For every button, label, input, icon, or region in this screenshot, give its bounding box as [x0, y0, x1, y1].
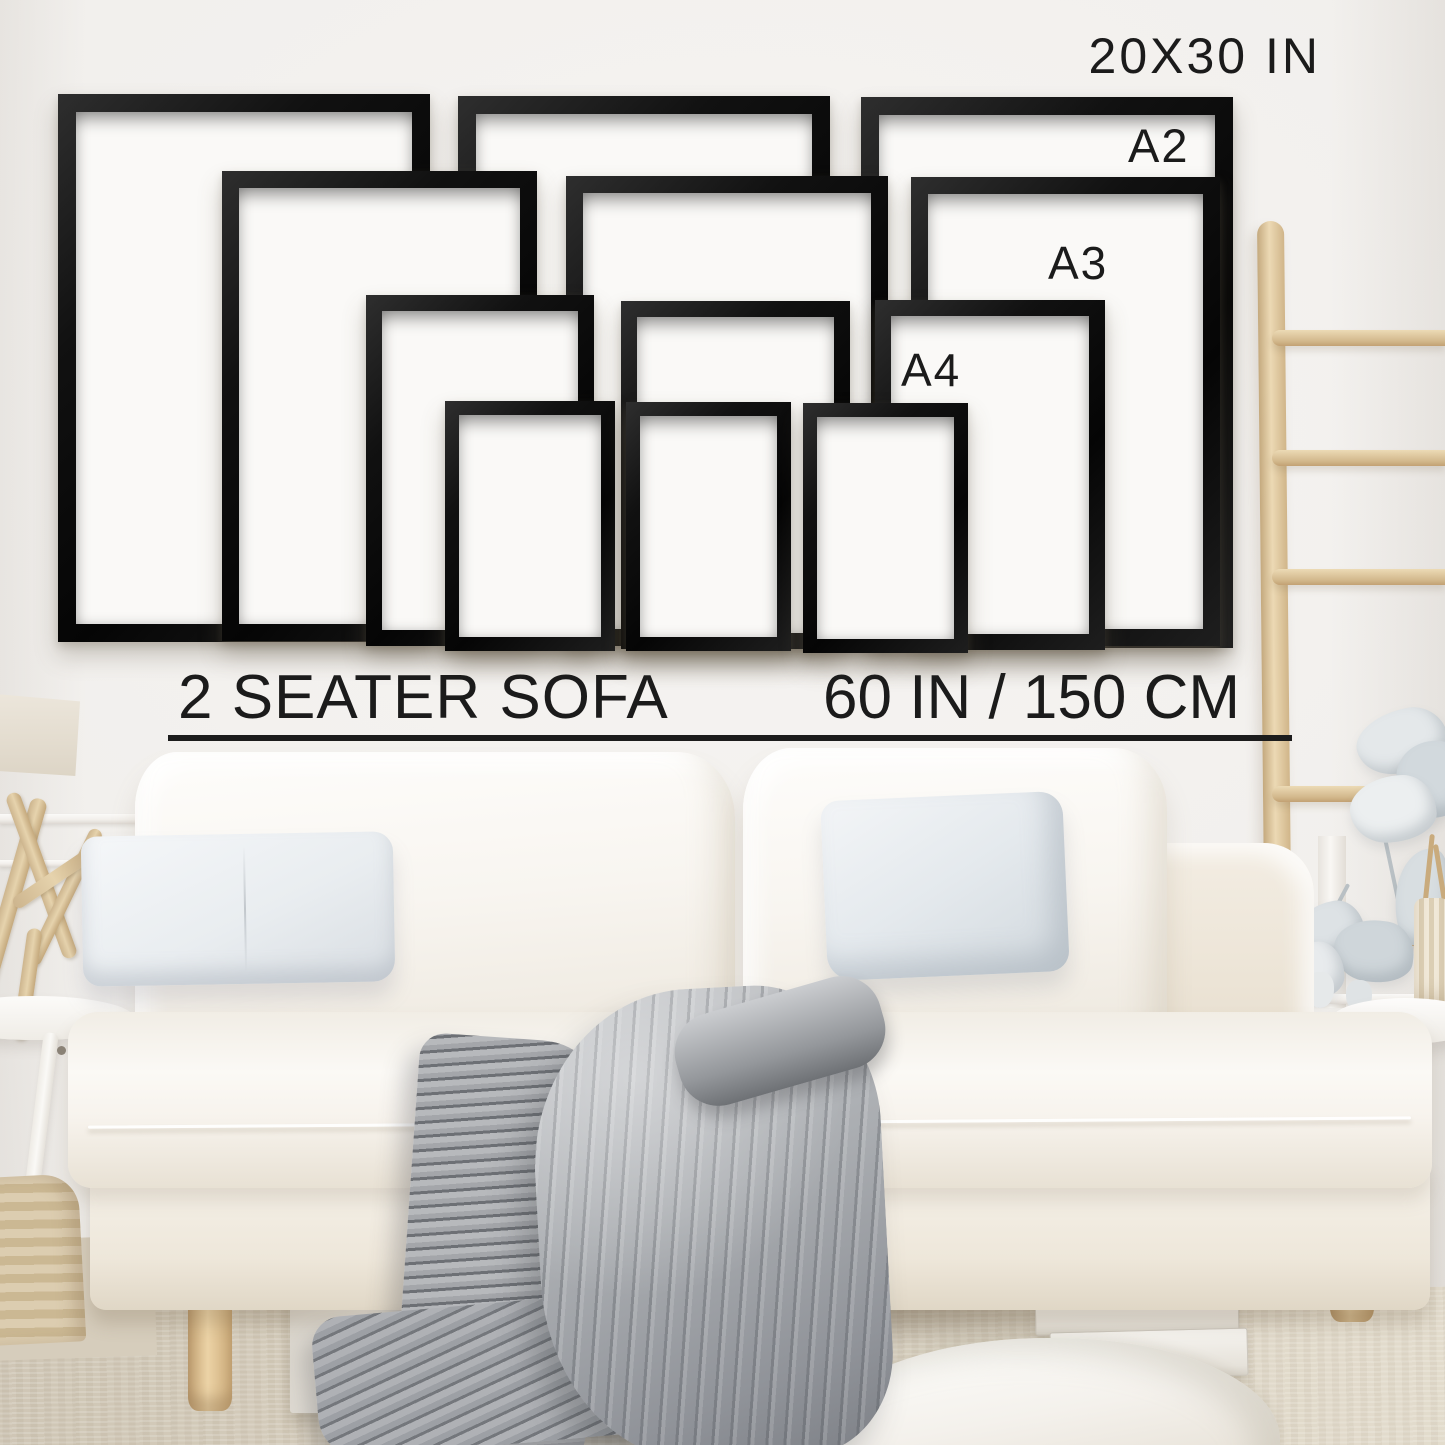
square-pillow — [820, 791, 1070, 981]
frame-a4-right — [803, 403, 968, 653]
side-table-screw — [57, 1046, 66, 1055]
lumbar-pillow — [81, 831, 396, 986]
frame-a4-middle — [626, 402, 791, 651]
vase — [1414, 898, 1445, 1008]
label-size-a4: A4 — [901, 347, 961, 393]
label-size-a2: A2 — [1128, 122, 1190, 169]
frame-paper — [817, 417, 954, 639]
frame-paper — [640, 416, 777, 637]
lamp-shade — [0, 694, 80, 776]
jute-basket — [0, 1173, 86, 1347]
label-sofa-width: 60 IN / 150 CM — [823, 667, 1240, 729]
sofa-width-divider-line — [168, 735, 1292, 741]
frame-paper — [459, 415, 601, 637]
label-size-a3: A3 — [1048, 240, 1108, 286]
ladder-rung — [1272, 450, 1445, 466]
size-guide-image: 20X30 IN A2 A3 A4 2 SEATER SOFA 60 IN / … — [0, 0, 1445, 1445]
label-sofa: 2 SEATER SOFA — [178, 667, 669, 729]
ladder-rung — [1272, 330, 1445, 346]
ladder-rung — [1272, 569, 1445, 585]
frame-a4-left — [445, 401, 615, 651]
label-size-20x30: 20X30 IN — [1089, 31, 1321, 81]
